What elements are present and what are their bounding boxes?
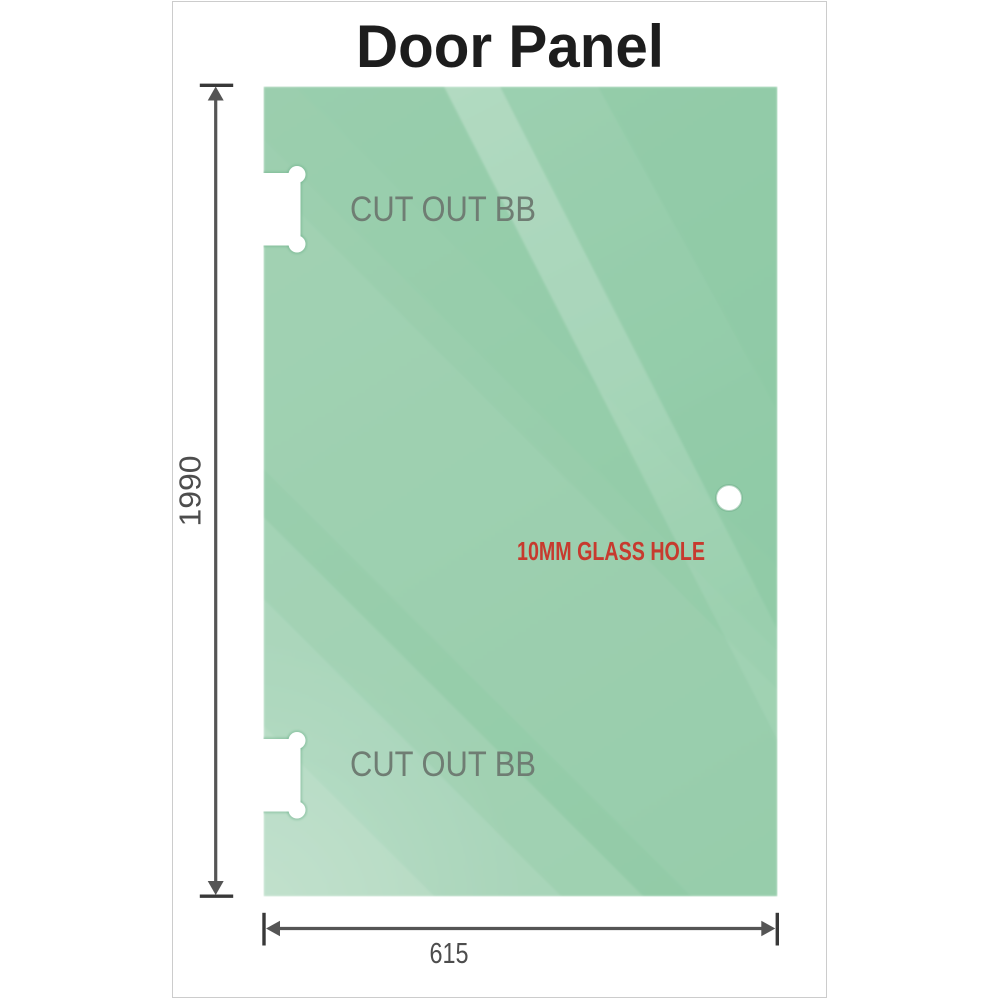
svg-text:10MM GLASS HOLE: 10MM GLASS HOLE bbox=[517, 538, 705, 566]
svg-text:Door Panel: Door Panel bbox=[356, 13, 664, 80]
svg-text:1990: 1990 bbox=[173, 456, 208, 527]
svg-text:615: 615 bbox=[430, 938, 469, 970]
svg-text:CUT OUT BB: CUT OUT BB bbox=[350, 189, 536, 229]
svg-text:CUT OUT BB: CUT OUT BB bbox=[350, 744, 536, 784]
